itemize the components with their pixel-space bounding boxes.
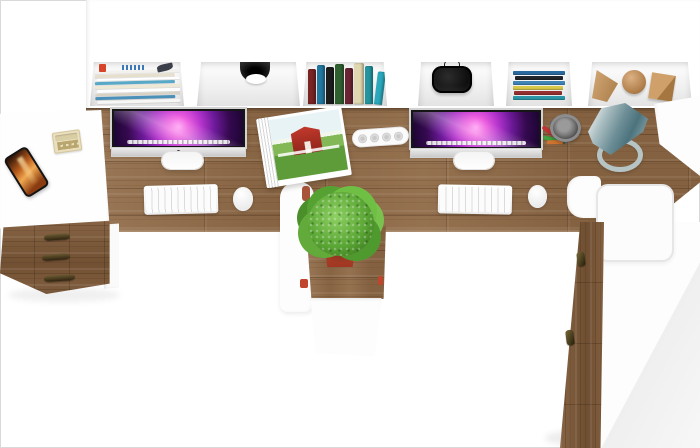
imac-stand bbox=[454, 152, 494, 169]
color-item bbox=[308, 69, 316, 104]
magazine-stack bbox=[94, 68, 179, 104]
imac-stand bbox=[162, 152, 203, 169]
shelf-compartment-magazines bbox=[90, 62, 184, 106]
color-item bbox=[515, 76, 564, 80]
color-item bbox=[513, 71, 566, 75]
chair-right bbox=[596, 184, 674, 262]
upright-books bbox=[308, 62, 382, 104]
socket bbox=[370, 133, 380, 143]
wardrobe-handle bbox=[565, 330, 575, 346]
imac-right bbox=[411, 110, 541, 157]
color-item bbox=[365, 66, 373, 104]
chair-left-red-detail bbox=[300, 279, 308, 288]
socket bbox=[382, 132, 392, 142]
imac-dock bbox=[426, 141, 527, 146]
mouse-left bbox=[233, 187, 253, 211]
magazine-cover-red-mark bbox=[99, 64, 106, 72]
cable-grommet-lip bbox=[246, 74, 266, 84]
calculator bbox=[52, 129, 83, 154]
color-item bbox=[513, 81, 566, 85]
pencil-cup bbox=[550, 114, 581, 142]
shelf-compartment-grommet bbox=[197, 62, 300, 106]
color-item bbox=[97, 99, 180, 104]
imac-left bbox=[112, 109, 245, 156]
headphones-icon bbox=[432, 66, 472, 93]
wardrobe-handle bbox=[576, 252, 586, 267]
barn-photo bbox=[268, 109, 347, 180]
keyboard-right bbox=[438, 184, 512, 214]
color-item bbox=[513, 86, 563, 90]
pedestal-cabinet bbox=[309, 298, 383, 358]
shelf-compartment-books bbox=[303, 62, 387, 106]
color-item bbox=[354, 63, 364, 104]
shelf-compartment-decor bbox=[588, 62, 692, 106]
desk-product-photo bbox=[0, 0, 700, 448]
color-item bbox=[374, 71, 386, 105]
socket bbox=[393, 131, 403, 141]
imac-screen bbox=[112, 109, 245, 147]
chair-left-brown-detail bbox=[302, 186, 310, 201]
chair-right-red-detail bbox=[378, 276, 383, 285]
potted-plant bbox=[308, 192, 374, 256]
imac-screen bbox=[411, 110, 541, 148]
drawer-unit-floor-shadow bbox=[8, 288, 120, 302]
mouse-right bbox=[528, 185, 547, 208]
color-item bbox=[335, 64, 343, 104]
color-item bbox=[345, 68, 353, 104]
color-item bbox=[514, 91, 562, 95]
color-item bbox=[326, 67, 334, 104]
wood-sphere-decor bbox=[622, 70, 646, 94]
shelf-compartment-headphones bbox=[418, 62, 494, 106]
imac-dock bbox=[127, 140, 230, 145]
wood-cube-decor bbox=[648, 72, 676, 101]
keyboard-left bbox=[144, 184, 219, 215]
open-magazine bbox=[256, 106, 352, 189]
magazine-cover-blue-marks bbox=[122, 65, 144, 70]
wood-triangle-decor bbox=[592, 70, 618, 102]
color-item bbox=[317, 65, 325, 104]
hutch-shelf bbox=[86, 0, 700, 112]
socket bbox=[358, 133, 368, 143]
